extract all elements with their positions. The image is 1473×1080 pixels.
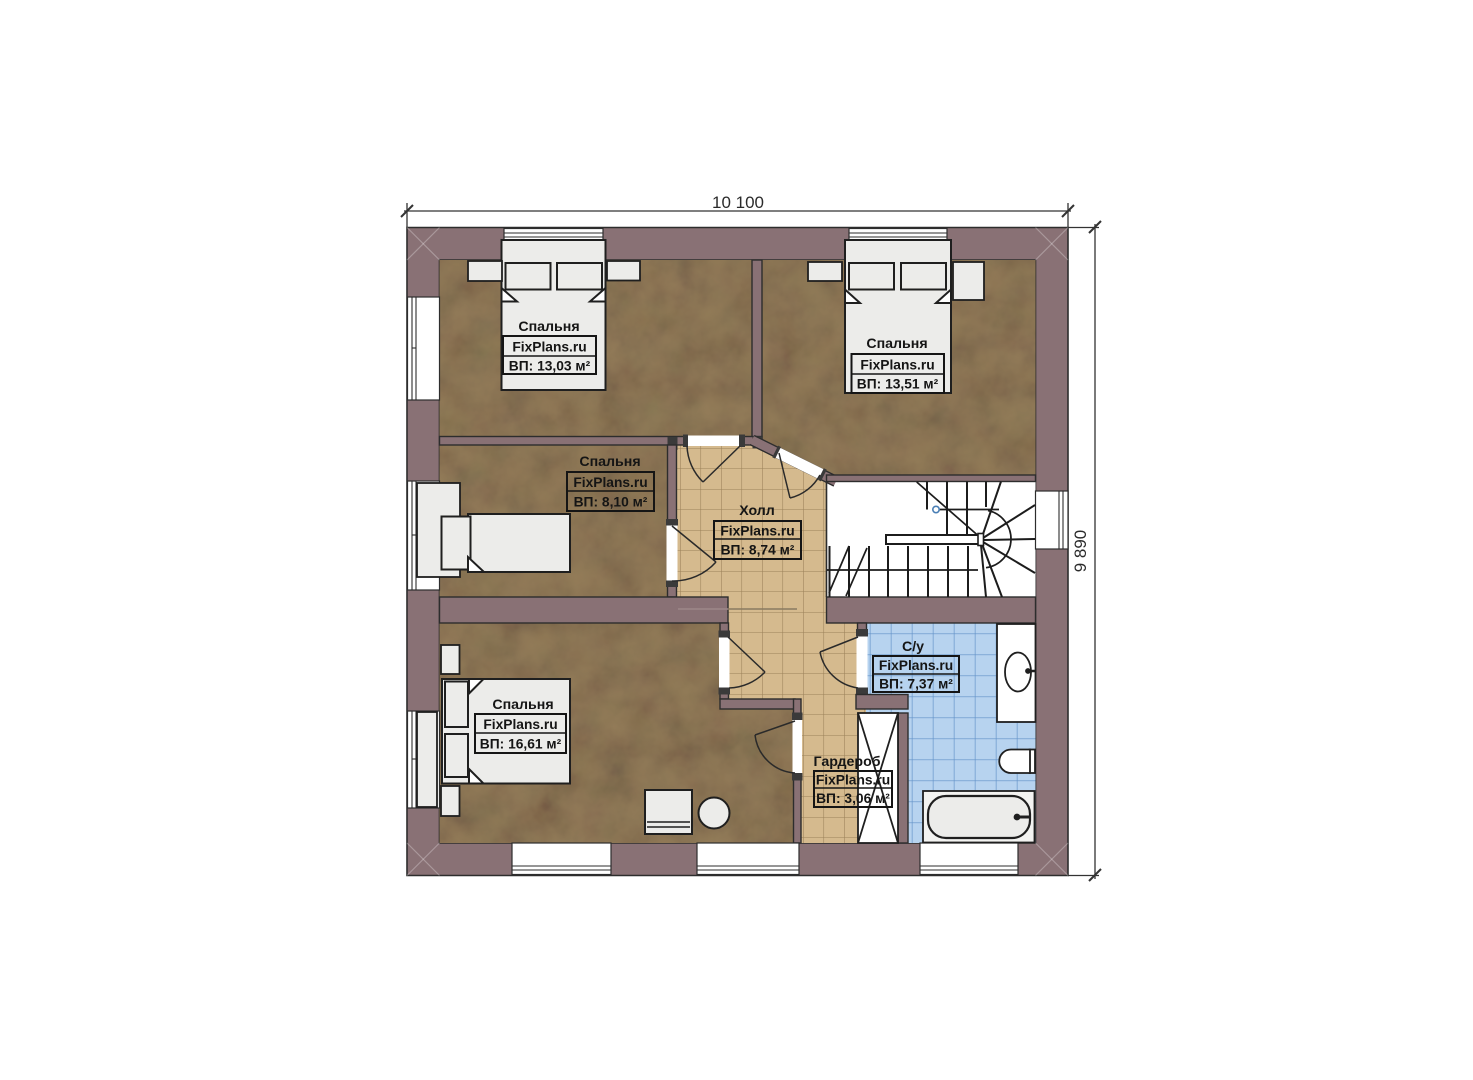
svg-text:FixPlans.ru: FixPlans.ru <box>720 524 794 539</box>
svg-text:FixPlans.ru: FixPlans.ru <box>483 717 557 732</box>
svg-text:FixPlans.ru: FixPlans.ru <box>860 358 934 373</box>
svg-text:С/у: С/у <box>902 639 924 655</box>
svg-text:FixPlans.ru: FixPlans.ru <box>879 658 953 673</box>
svg-text:FixPlans.ru: FixPlans.ru <box>573 475 647 490</box>
svg-text:9 890: 9 890 <box>1071 530 1090 573</box>
svg-text:ВП: 13,51 м²: ВП: 13,51 м² <box>857 377 939 392</box>
svg-text:ВП: 8,10 м²: ВП: 8,10 м² <box>574 495 648 510</box>
svg-text:10 100: 10 100 <box>712 193 764 212</box>
svg-text:Спальня: Спальня <box>518 319 579 335</box>
svg-text:Спальня: Спальня <box>579 454 640 470</box>
svg-text:FixPlans.ru: FixPlans.ru <box>512 340 586 355</box>
svg-text:ВП: 7,37 м²: ВП: 7,37 м² <box>879 677 953 692</box>
svg-text:Спальня: Спальня <box>492 697 553 713</box>
svg-text:ВП: 16,61 м²: ВП: 16,61 м² <box>480 737 562 752</box>
svg-text:ВП: 8,74 м²: ВП: 8,74 м² <box>721 543 795 558</box>
svg-text:Холл: Холл <box>739 503 775 519</box>
svg-text:Спальня: Спальня <box>866 336 927 352</box>
svg-text:FixPlans.ru: FixPlans.ru <box>816 773 890 788</box>
svg-text:ВП: 3,06 м²: ВП: 3,06 м² <box>816 791 890 806</box>
svg-text:ВП: 13,03 м²: ВП: 13,03 м² <box>509 359 591 374</box>
svg-text:Гардероб: Гардероб <box>813 754 880 770</box>
